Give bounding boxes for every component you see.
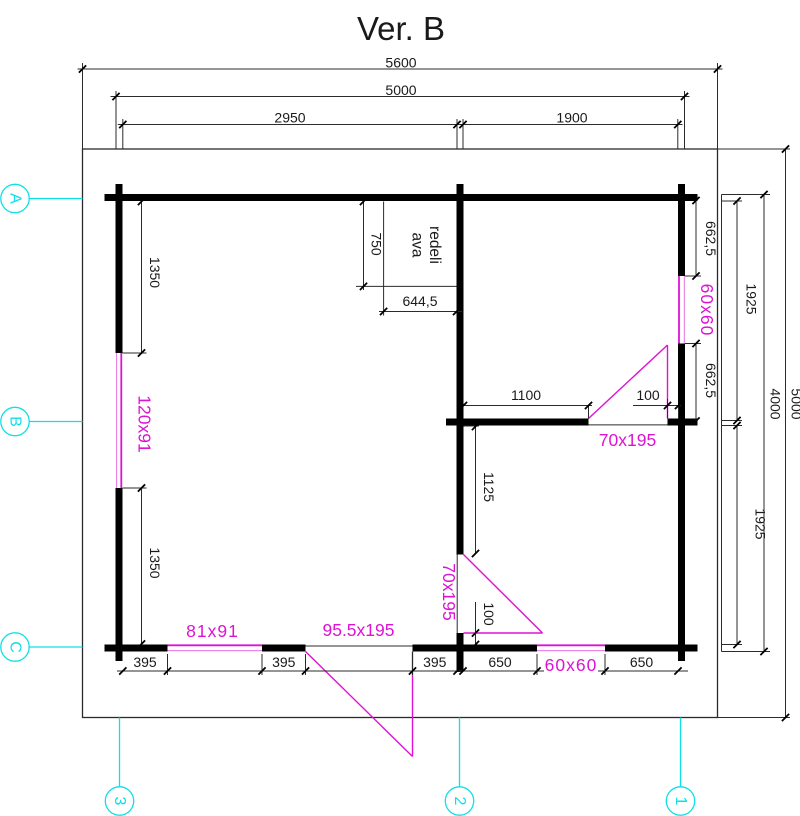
svg-text:1925: 1925 bbox=[753, 508, 769, 539]
svg-text:100: 100 bbox=[636, 387, 660, 403]
svg-text:120x91: 120x91 bbox=[135, 395, 155, 452]
svg-text:5000: 5000 bbox=[385, 82, 416, 98]
svg-text:redeli: redeli bbox=[426, 226, 443, 264]
svg-text:A: A bbox=[7, 193, 24, 204]
svg-text:100: 100 bbox=[481, 602, 497, 626]
svg-text:60x60: 60x60 bbox=[697, 284, 717, 337]
svg-text:5600: 5600 bbox=[385, 55, 416, 71]
svg-text:95.5x195: 95.5x195 bbox=[322, 620, 394, 640]
svg-text:Ver. B: Ver. B bbox=[357, 10, 445, 47]
svg-text:750: 750 bbox=[369, 232, 385, 256]
svg-text:ava: ava bbox=[409, 233, 426, 258]
svg-text:1925: 1925 bbox=[744, 283, 760, 314]
svg-text:3: 3 bbox=[111, 797, 128, 806]
svg-text:2950: 2950 bbox=[274, 110, 305, 126]
svg-text:4000: 4000 bbox=[768, 388, 784, 419]
svg-text:1125: 1125 bbox=[481, 472, 497, 502]
svg-text:662,5: 662,5 bbox=[703, 221, 719, 256]
svg-text:1: 1 bbox=[672, 797, 689, 806]
svg-text:395: 395 bbox=[272, 654, 296, 670]
svg-text:70x195: 70x195 bbox=[439, 563, 459, 620]
svg-text:60x60: 60x60 bbox=[545, 655, 598, 675]
svg-text:395: 395 bbox=[133, 654, 157, 670]
svg-text:5000: 5000 bbox=[789, 388, 800, 419]
svg-text:1900: 1900 bbox=[556, 110, 587, 126]
svg-text:1100: 1100 bbox=[511, 387, 541, 403]
svg-text:650: 650 bbox=[630, 654, 654, 670]
svg-text:2: 2 bbox=[451, 797, 468, 806]
svg-text:662,5: 662,5 bbox=[703, 363, 719, 398]
svg-text:C: C bbox=[7, 641, 24, 653]
svg-text:1350: 1350 bbox=[147, 257, 163, 288]
svg-text:644,5: 644,5 bbox=[402, 293, 437, 309]
svg-text:B: B bbox=[7, 416, 24, 427]
svg-text:70x195: 70x195 bbox=[599, 430, 656, 450]
svg-text:81x91: 81x91 bbox=[186, 621, 239, 641]
svg-text:650: 650 bbox=[488, 654, 512, 670]
svg-text:395: 395 bbox=[423, 654, 447, 670]
svg-text:1350: 1350 bbox=[147, 547, 163, 578]
